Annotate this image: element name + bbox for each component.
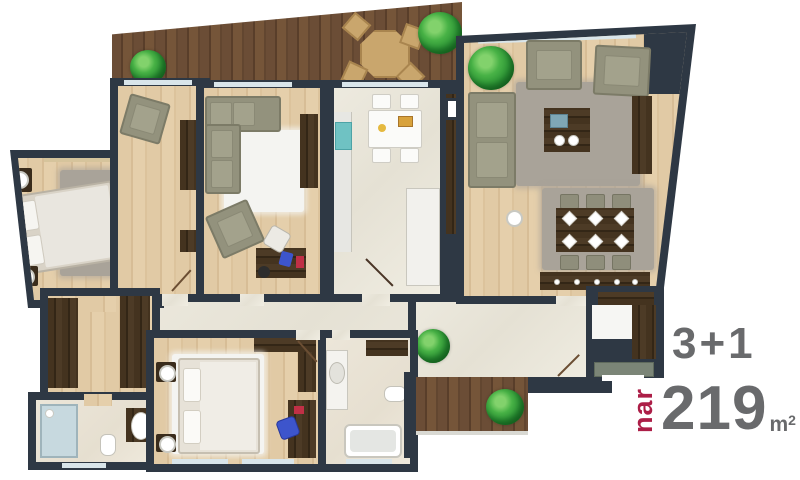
- door-gap: [240, 294, 264, 306]
- bedroom3-book: [294, 406, 304, 414]
- living-wall-notch: [644, 32, 696, 94]
- door-gap: [296, 330, 320, 340]
- kitchen: [326, 80, 448, 302]
- bed-mattress: [200, 362, 256, 450]
- bedroom3-lamp: [159, 365, 176, 382]
- lounge-window: [214, 82, 292, 87]
- master-lamp: [17, 268, 35, 286]
- bathroom2-basin: [329, 362, 345, 384]
- lounge-room: [196, 80, 328, 302]
- bathroom2-toilet: [384, 386, 406, 402]
- wardrobe-left: [48, 298, 78, 388]
- living-armchair: [526, 40, 582, 90]
- plan-annotation: 3+1 nar 219 m2: [630, 322, 800, 435]
- area-unit: m2: [769, 413, 795, 435]
- kitchen-chair: [372, 94, 391, 109]
- bed-mattress: [35, 185, 119, 268]
- toilet: [100, 434, 116, 456]
- living-room: [456, 24, 696, 304]
- dining-chair: [586, 194, 605, 209]
- door-gap: [362, 294, 390, 306]
- bathroom-2: [318, 330, 418, 472]
- bathroom2-shelf: [366, 340, 408, 356]
- area-value: 219: [661, 384, 767, 435]
- shower: [40, 404, 78, 458]
- kitchen-food-tray: [398, 116, 413, 127]
- door-gap: [84, 394, 112, 406]
- rooms-count-label: 3+1: [672, 322, 800, 366]
- living-stool: [506, 210, 523, 227]
- balcony-wall: [404, 372, 416, 458]
- sitting-window: [124, 80, 192, 85]
- kitchen-table: [368, 110, 422, 148]
- dining-chair: [560, 194, 579, 209]
- bedroom3-window: [242, 459, 294, 464]
- area-row: nar 219 m2: [630, 384, 800, 435]
- bedroom3-window: [172, 459, 228, 464]
- bathroom1-window: [62, 463, 106, 468]
- corner-sofa-leg: [205, 124, 241, 194]
- dining-chair: [612, 194, 631, 209]
- kitchen-window: [342, 82, 428, 87]
- balcony-plant: [486, 389, 524, 425]
- bathroom2-window: [346, 459, 392, 464]
- bathtub: [344, 424, 402, 458]
- living-armchair: [593, 45, 652, 98]
- bedroom3-lamp: [159, 436, 176, 453]
- dining-chair: [560, 255, 579, 270]
- kitchen-sink: [335, 122, 352, 150]
- master-window: [44, 158, 110, 162]
- tv-unit: [632, 96, 652, 174]
- hall-plant: [416, 329, 450, 363]
- balcony-railing: [416, 431, 528, 435]
- bedroom-3: [146, 330, 326, 472]
- door-gap: [90, 296, 116, 312]
- living-sofa: [468, 92, 516, 188]
- door-gap: [332, 330, 350, 340]
- door-gap: [556, 296, 586, 306]
- lounge-stool: [258, 266, 270, 278]
- dining-table: [556, 208, 634, 252]
- area-unit-sup: 2: [788, 412, 796, 428]
- entry-niche: [592, 305, 632, 339]
- living-floor: [456, 24, 696, 304]
- lounge-shelf: [300, 114, 318, 188]
- living-palm: [468, 46, 514, 90]
- kitchen-chair: [400, 94, 419, 109]
- desk-book: [296, 256, 304, 268]
- kitchen-food-plate: [378, 124, 386, 132]
- brand-logo: nar: [630, 388, 657, 433]
- terrace-stool: [342, 12, 372, 42]
- floor-plan: 3+1 nar 219 m2: [0, 0, 800, 480]
- sitting-area: [110, 78, 210, 302]
- entry-cabinet-top: [598, 292, 654, 305]
- terrace-palm: [418, 12, 462, 54]
- kitchen-chair: [372, 148, 391, 163]
- balcony: [416, 377, 528, 431]
- bed-pillow: [183, 368, 201, 402]
- kitchen-chair: [400, 148, 419, 163]
- bed-pillow: [183, 410, 201, 444]
- door-gap: [162, 294, 188, 306]
- master-bed: [8, 180, 123, 275]
- area-unit-m: m: [769, 413, 788, 436]
- dining-chair: [612, 255, 631, 270]
- kitchen-island: [406, 188, 440, 286]
- dining-chair: [586, 255, 605, 270]
- master-lamp: [11, 171, 29, 189]
- coffee-table: [544, 108, 590, 152]
- bedroom3-bed: [178, 358, 260, 454]
